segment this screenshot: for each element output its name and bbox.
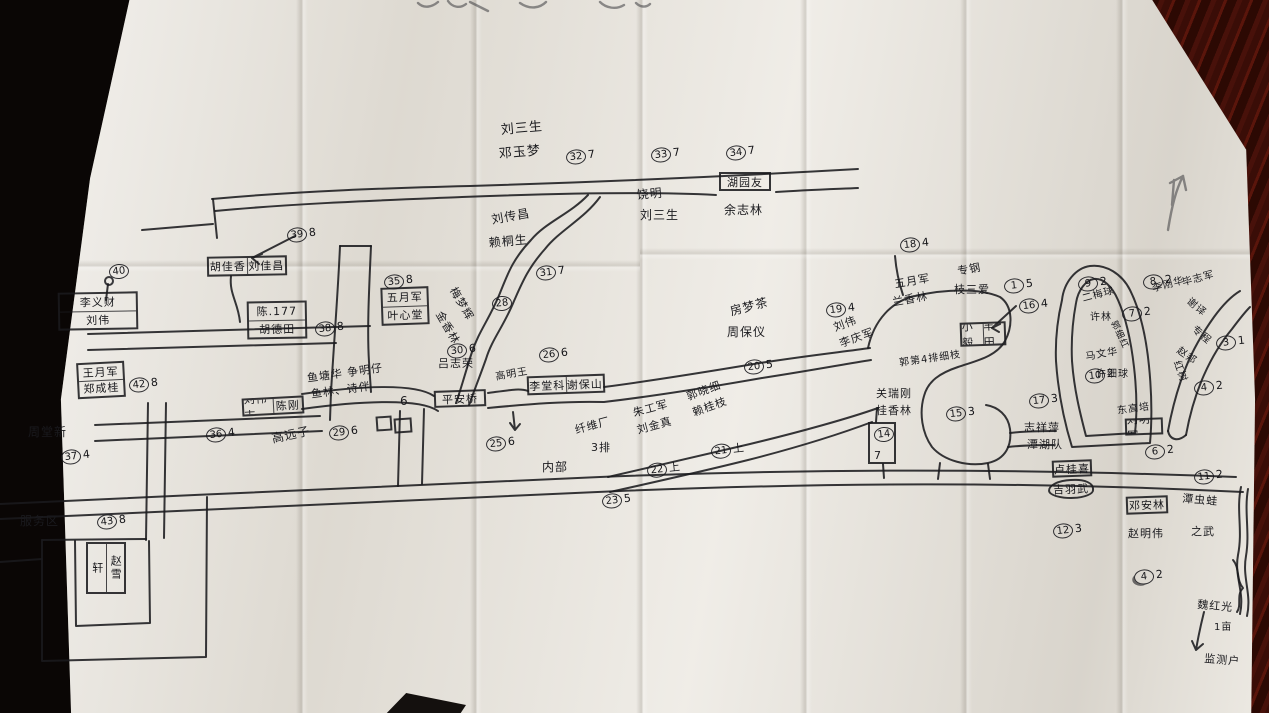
building-name: 刘伟 [60, 310, 136, 329]
marker-number: 29 [328, 424, 349, 441]
marker-number: 3 [1215, 334, 1236, 351]
marker-suffix: 4 [227, 426, 235, 441]
house-number-marker: 40 [108, 263, 129, 280]
building-name: 湖园友 [721, 174, 769, 189]
marker-suffix: 2 [1164, 273, 1172, 288]
building-name: 陈.177 [249, 303, 305, 320]
marker-suffix: 8 [308, 226, 316, 241]
house-number-marker: 102 [1084, 367, 1114, 385]
marker-suffix: 上 [668, 460, 680, 475]
building-name: 平安桥 [436, 391, 484, 406]
marker-suffix: 7 [587, 148, 595, 163]
marker-suffix: 5 [765, 358, 773, 373]
building-name: 谢保山 [565, 376, 603, 392]
map-label: 赵明伟 [1128, 525, 1164, 541]
marker-suffix: 2 [1215, 468, 1223, 483]
marker-number: 22 [646, 462, 667, 479]
map-label: 桂香林 [876, 402, 912, 418]
house-number-marker: 21上 [710, 441, 744, 459]
marker-number: 16 [1018, 297, 1039, 314]
building-name: 郑成桂 [79, 378, 124, 397]
map-building: 小毅丰田 [960, 321, 1007, 347]
map-label: 周堂新 [28, 423, 67, 440]
house-number-marker: 173 [1028, 392, 1058, 410]
house-number-marker: 14 [873, 426, 894, 443]
building-name: 小毅 [962, 324, 983, 345]
marker-suffix: 7 [557, 264, 565, 279]
map-building: 平安桥 [434, 389, 487, 408]
house-number-marker: 317 [535, 264, 565, 282]
house-number-marker: 184 [899, 236, 929, 254]
map-label: 之武 [1191, 523, 1215, 539]
marker-number: 14 [873, 426, 894, 443]
building-name: 刘佳昌 [246, 257, 285, 274]
house-number-marker: 72 [1121, 305, 1151, 323]
building-name: 丰田 [982, 323, 1004, 344]
building-name [378, 418, 391, 430]
marker-number: 9 [1077, 275, 1098, 292]
house-number-marker: 31 [1215, 334, 1245, 352]
marker-number: 15 [945, 405, 966, 422]
map-building: 邓安林 [1126, 495, 1169, 514]
marker-suffix: 4 [1040, 297, 1048, 312]
marker-suffix: 2 [1215, 379, 1223, 394]
marker-suffix: 3 [1050, 392, 1058, 407]
marker-suffix: 5 [623, 492, 631, 507]
map-building: 卢桂喜 [1052, 459, 1093, 477]
map-label: 赖桐生 [488, 231, 528, 251]
house-number-marker: 42 [1133, 568, 1163, 586]
map-building: 刘明军 [1125, 417, 1164, 435]
house-number-marker: 374 [60, 448, 90, 466]
map-label: 谢译 [1184, 293, 1210, 319]
building-name: 赵雪 [106, 544, 125, 592]
house-number-marker: 428 [128, 376, 158, 394]
marker-suffix: 2 [1106, 367, 1114, 382]
marker-suffix: 2 [1143, 305, 1151, 320]
map-label: 3排 [591, 439, 611, 455]
house-number-marker: 22上 [646, 460, 680, 478]
map-building: 吉羽武 [1048, 478, 1095, 500]
marker-number: 23 [601, 492, 622, 509]
house-number-marker: 28 [491, 295, 512, 312]
map-building [375, 415, 392, 431]
marker-number: 6 [1144, 443, 1165, 460]
building-name: 胡德田 [249, 319, 305, 337]
marker-number: 4 [1193, 379, 1214, 396]
building-name: 邓安林 [1128, 497, 1166, 512]
house-number-marker: 123 [1052, 522, 1082, 540]
marker-suffix: 4 [82, 448, 90, 463]
map-building: 五月军叶心堂 [380, 286, 429, 326]
marker-suffix: 8 [336, 320, 344, 335]
map-building: 胡佳香刘佳昌 [207, 255, 287, 276]
map-building: 李堂科谢保山 [527, 374, 606, 396]
house-number-marker: 327 [565, 148, 595, 166]
house-number-marker: 153 [945, 405, 975, 423]
marker-number: 7 [1121, 305, 1142, 322]
marker-number: 30 [446, 342, 467, 359]
marker-number: 21 [710, 443, 731, 460]
map-label: 关瑞刚 [876, 385, 912, 401]
marker-number: 38 [314, 320, 335, 337]
marker-suffix: 6 [468, 342, 476, 357]
map-annotations: 胡佳香刘佳昌李义财刘伟陈.177胡德田五月军叶心堂王月军郑成桂刘伟志陈刚李堂科谢… [0, 0, 1269, 713]
marker-number: 11 [1193, 468, 1214, 485]
building-name: 五月军 [382, 288, 427, 306]
marker-suffix: 8 [405, 273, 413, 288]
marker-number: 33 [650, 146, 671, 163]
map-label: 高明王 [494, 362, 529, 383]
house-number-marker: 42 [1193, 379, 1223, 397]
marker-number: 36 [205, 426, 226, 443]
marker-suffix: 7 [747, 144, 755, 159]
map-label: 魏红光 [1197, 596, 1234, 615]
marker-suffix: 8 [118, 513, 126, 528]
house-number-marker: 256 [485, 435, 515, 453]
map-label: 邓玉梦 [498, 139, 542, 162]
marker-number: 31 [535, 264, 556, 281]
marker-suffix: 2 [1099, 275, 1107, 290]
house-number-marker: 194 [825, 301, 855, 319]
map-building [393, 417, 412, 433]
house-number-marker: 205 [743, 358, 773, 376]
map-label: 志祥萍 [1024, 419, 1060, 435]
map-building: 刘伟志陈刚 [242, 395, 305, 416]
building-name: 吉羽武 [1050, 480, 1093, 497]
house-number-marker: 266 [538, 346, 568, 364]
house-number-marker: 82 [1142, 273, 1172, 291]
marker-number: 42 [128, 376, 149, 393]
map-label: 高远子 [270, 422, 312, 447]
marker-suffix: 5 [1025, 277, 1033, 292]
map-label: 周保仪 [727, 323, 766, 340]
map-label: 毕志军 [1180, 265, 1216, 288]
marker-number: 26 [538, 346, 559, 363]
marker-suffix: 6 [507, 435, 515, 450]
marker-suffix: 6 [560, 346, 568, 361]
marker-number: 1 [1003, 277, 1024, 294]
map-label: 6 [400, 394, 409, 408]
map-label: 潭湖队 [1027, 436, 1063, 452]
marker-suffix: 7 [672, 146, 680, 161]
marker-number: 8 [1142, 273, 1163, 290]
house-number-marker: 438 [96, 513, 126, 531]
house-number-marker: 62 [1144, 443, 1174, 461]
marker-suffix: 上 [732, 441, 744, 456]
marker-number: 35 [383, 273, 404, 290]
marker-number: 10 [1084, 367, 1105, 384]
marker-number: 37 [60, 448, 81, 465]
marker-number: 4 [1133, 568, 1154, 585]
house-number-marker: 306 [446, 342, 476, 360]
map-label: 刘传昌 [490, 204, 531, 228]
marker-number: 39 [286, 226, 307, 243]
house-number-marker: 235 [601, 492, 631, 510]
map-label: 专钢 [956, 259, 982, 279]
building-name: 陈刚 [272, 397, 302, 413]
map-label: 许林 [1090, 308, 1112, 323]
marker-number: 17 [1028, 392, 1049, 409]
house-number-marker: 398 [286, 226, 316, 244]
house-number-marker: 364 [205, 426, 235, 444]
photo-of-hand-drawn-map: 胡佳香刘佳昌李义财刘伟陈.177胡德田五月军叶心堂王月军郑成桂刘伟志陈刚李堂科谢… [0, 0, 1269, 713]
map-label: 房梦茶 [728, 293, 770, 320]
marker-suffix: 4 [847, 301, 855, 316]
building-name: 刘明军 [1127, 419, 1161, 433]
house-number-marker: 358 [383, 273, 413, 291]
house-number-marker: 388 [314, 320, 344, 338]
map-building: 陈.177胡德田 [247, 300, 308, 339]
house-number-marker: 164 [1018, 297, 1048, 315]
map-building: 王月军郑成桂 [76, 361, 126, 399]
building-name: 轩 [88, 544, 106, 592]
marker-suffix: 2 [1166, 443, 1174, 458]
marker-number: 40 [108, 263, 129, 280]
map-label: 纤维厂 [573, 413, 612, 438]
map-label: 服务区 [20, 512, 59, 529]
house-number-marker: 347 [725, 144, 755, 162]
map-label: 马文华 [1084, 342, 1119, 363]
house-number-marker: 92 [1077, 275, 1107, 293]
map-label: 监测户 [1204, 650, 1241, 669]
house-number-marker: 112 [1193, 468, 1223, 486]
map-label: 枝三爱 [954, 281, 990, 297]
marker-number: 25 [485, 435, 506, 452]
map-building: 轩赵雪 [86, 542, 126, 594]
map-label: 7 [874, 449, 882, 462]
map-label: 1亩 [1214, 618, 1232, 633]
map-label: 余志林 [724, 201, 763, 218]
marker-suffix: 8 [150, 376, 158, 391]
marker-suffix: 1 [1237, 334, 1245, 349]
map-label: 潭虫蛙 [1182, 490, 1219, 509]
map-label: 刘三生 [640, 206, 679, 223]
marker-number: 12 [1052, 522, 1073, 539]
marker-number: 34 [725, 144, 746, 161]
house-number-marker: 337 [650, 146, 680, 164]
marker-number: 32 [565, 148, 586, 165]
map-label: 刘三生 [500, 115, 544, 138]
map-label: 内部 [542, 458, 568, 475]
building-name: 胡佳香 [209, 258, 247, 275]
marker-suffix: 6 [350, 424, 358, 439]
marker-number: 19 [825, 301, 846, 318]
marker-number: 20 [743, 358, 764, 375]
map-building: 李义财刘伟 [58, 291, 139, 330]
marker-number: 28 [491, 295, 512, 312]
marker-number: 43 [96, 513, 117, 530]
building-name: 刘伟志 [244, 399, 273, 414]
building-name: 李堂科 [529, 377, 566, 393]
building-name: 李义财 [60, 293, 136, 311]
map-label: 饶明 [636, 184, 663, 203]
marker-suffix: 4 [921, 236, 929, 251]
map-label: 郭第4排细枝 [898, 345, 962, 369]
marker-number: 18 [899, 236, 920, 253]
building-name: 叶心堂 [383, 305, 428, 324]
marker-suffix: 2 [1155, 568, 1163, 583]
map-label: 东高培 [1116, 397, 1151, 416]
house-number-marker: 15 [1003, 277, 1033, 295]
map-label: 专程 [1189, 321, 1215, 347]
marker-suffix: 3 [1074, 522, 1082, 537]
marker-suffix: 3 [967, 405, 975, 420]
building-name [396, 420, 411, 432]
building-name: 卢桂喜 [1054, 461, 1090, 475]
map-building: 湖园友 [719, 172, 771, 191]
house-number-marker: 296 [328, 424, 358, 442]
